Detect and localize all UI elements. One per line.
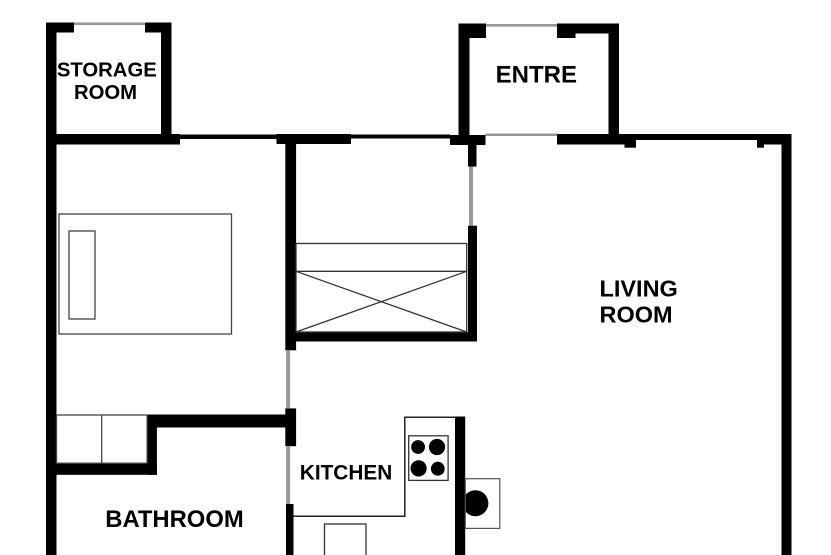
svg-text:ROOM: ROOM <box>74 82 137 104</box>
svg-text:STORAGE: STORAGE <box>57 60 157 82</box>
svg-text:KITCHEN: KITCHEN <box>300 462 392 485</box>
svg-text:ENTRE: ENTRE <box>496 62 577 89</box>
svg-text:LIVING: LIVING <box>600 275 678 301</box>
svg-text:ROOM: ROOM <box>600 301 673 327</box>
svg-text:BATHROOM: BATHROOM <box>105 506 243 533</box>
